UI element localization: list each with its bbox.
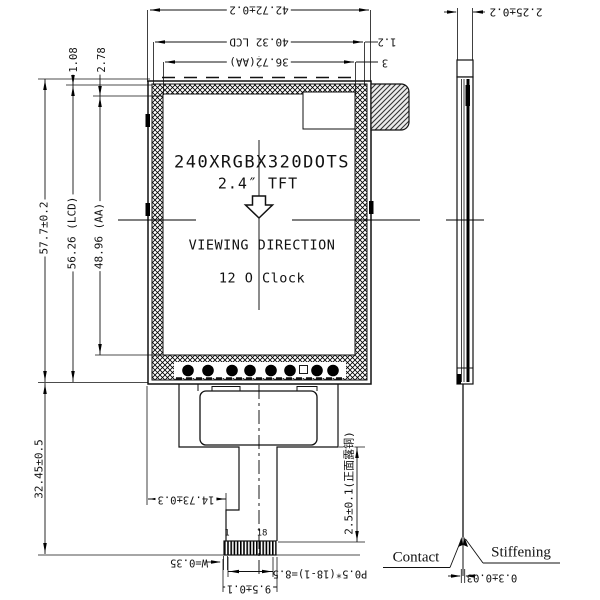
fpc-left-edge <box>179 384 239 541</box>
pin-18-label: 18 <box>257 530 268 539</box>
dim-fpc-thickness: 0.3±0.03 <box>467 572 518 583</box>
side-view <box>457 60 473 576</box>
dim-aa-width: 36.72(AA) <box>227 57 291 68</box>
dim-fpc-height: 32.45±0.5 <box>34 437 45 501</box>
led-strip-component <box>300 366 308 374</box>
fpc-right-edge <box>277 384 338 541</box>
contact-label: Contact <box>393 551 440 566</box>
dim-lcd-height: 56.26 (LCD) <box>67 195 78 272</box>
dim-total-height: 57.7±0.2 <box>39 200 50 257</box>
drawing-linework <box>0 0 600 600</box>
dim-aa-margin: 3 <box>382 57 388 68</box>
fpc-contact-fingers <box>224 541 276 555</box>
panel-size-text: 2.4″ TFT <box>218 177 298 192</box>
stiffening-label: Stiffening <box>491 546 551 561</box>
clock-direction-text: 12 O Clock <box>219 272 305 286</box>
front-view <box>146 78 410 385</box>
pin-1-label: 1 <box>224 530 229 539</box>
side-glass-layer <box>467 79 470 382</box>
dim-fpc-end-width: 9.5±0.1 <box>225 583 273 594</box>
viewing-direction-text: VIEWING DIRECTION <box>189 239 336 253</box>
side-ic-blob <box>466 85 471 106</box>
dim-aa-height: 48.96 (AA) <box>94 201 105 271</box>
dim-contact-pitch: P0.5*(18-1)=8.5 <box>273 568 368 579</box>
dim-top-margin: 1.08 <box>69 45 80 74</box>
dim-fpc-offset: 14.73±0.3 <box>156 494 217 505</box>
dim-thickness: 2.25±0.2 <box>490 7 543 18</box>
fpc-stiffener <box>200 391 317 445</box>
dim-lcd-width: 40.32 LCD <box>227 37 291 48</box>
dim-exposed-copper: 2.5±0.1(正面露铜) <box>344 429 355 537</box>
dim-contact-width: W=0.35 <box>170 557 208 568</box>
side-body <box>457 77 473 384</box>
dim-right-margin: 1.2 <box>378 36 397 47</box>
dim-aa-top-margin: 2.78 <box>97 45 108 74</box>
driver-ic-area <box>303 92 355 129</box>
stiffener-tabs <box>212 387 317 392</box>
dim-total-width: 42.72±0.2 <box>227 5 291 16</box>
side-bump <box>371 84 409 130</box>
side-top-cap <box>457 60 473 77</box>
panel-resolution-text: 240XRGBX320DOTS <box>174 155 350 172</box>
led-strip <box>174 362 346 379</box>
lcd-mechanical-drawing: 240XRGBX320DOTS 2.4″ TFT VIEWING DIRECTI… <box>0 0 600 600</box>
